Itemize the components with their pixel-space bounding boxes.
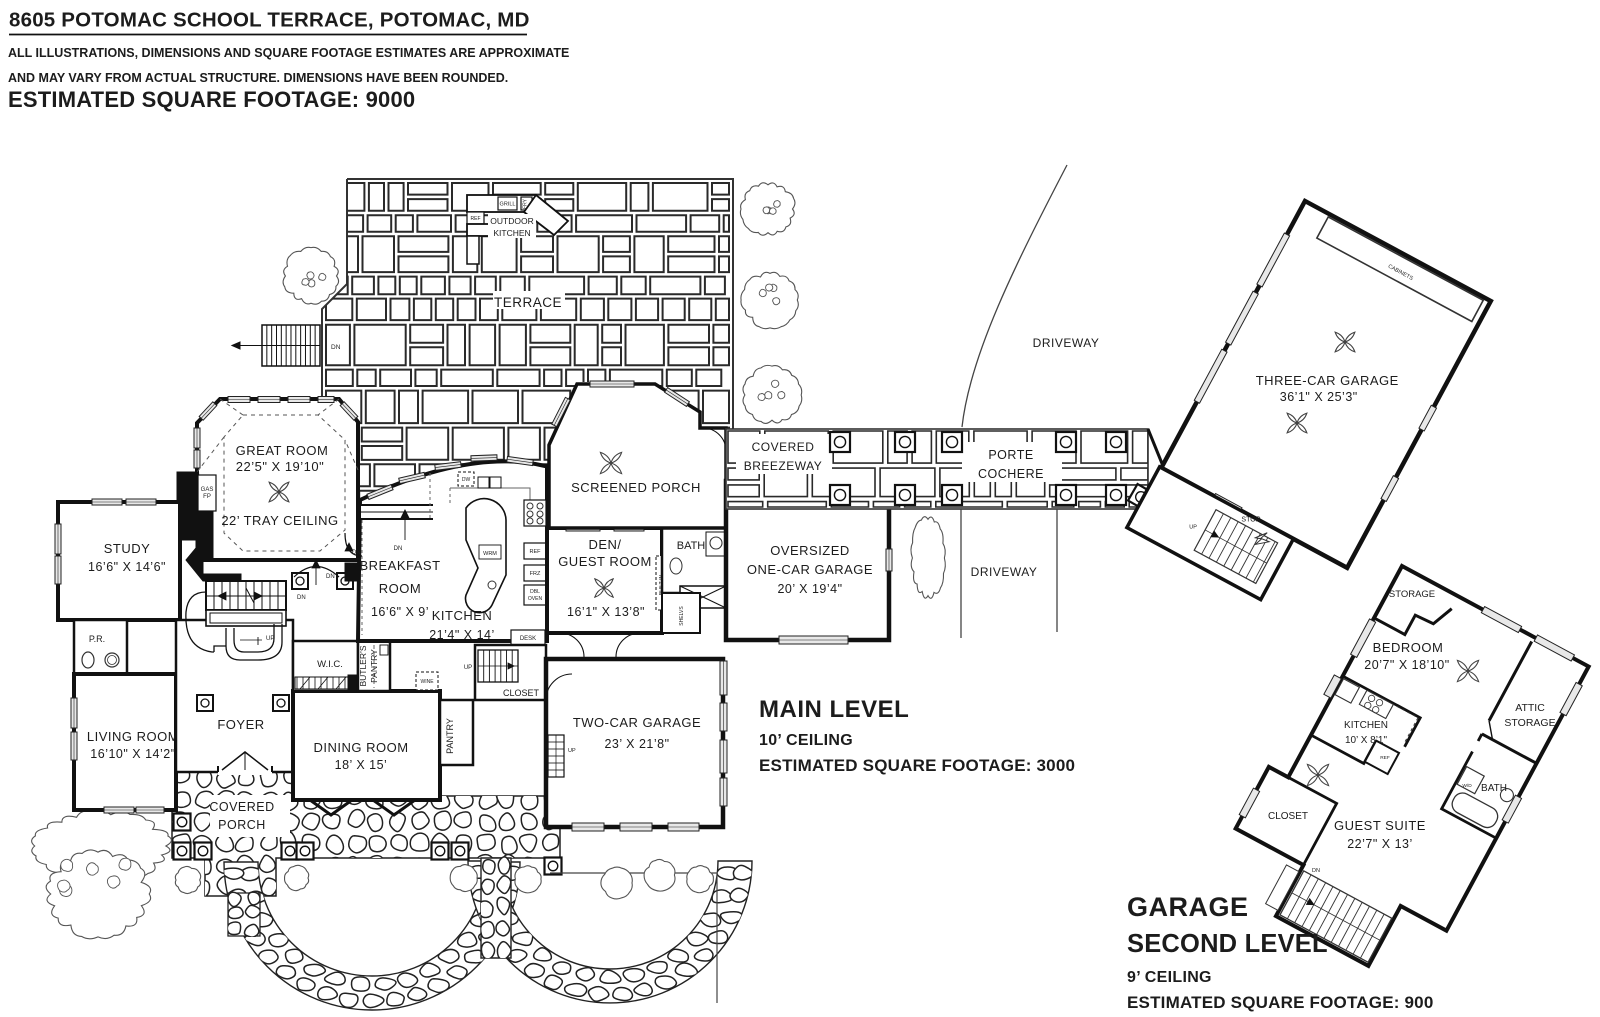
- svg-text:COVERED: COVERED: [209, 800, 274, 814]
- svg-text:8605 POTOMAC SCHOOL TERRACE, P: 8605 POTOMAC SCHOOL TERRACE, POTOMAC, MD: [9, 9, 530, 32]
- svg-text:REF: REF: [1380, 755, 1390, 761]
- svg-text:SCREENED PORCH: SCREENED PORCH: [571, 480, 701, 495]
- svg-text:GUEST ROOM: GUEST ROOM: [558, 554, 652, 569]
- svg-text:DBL: DBL: [530, 589, 540, 595]
- svg-text:16’1" X 13’8": 16’1" X 13’8": [567, 605, 645, 619]
- svg-text:FRZ: FRZ: [530, 571, 541, 577]
- svg-text:COVERED: COVERED: [752, 440, 815, 454]
- svg-text:ESTIMATED SQUARE FOOTAGE: 9000: ESTIMATED SQUARE FOOTAGE: 9000: [8, 87, 415, 112]
- svg-text:DN: DN: [326, 574, 335, 580]
- svg-text:PORTE: PORTE: [988, 448, 1033, 462]
- svg-text:20’7" X 18’10": 20’7" X 18’10": [1364, 658, 1449, 672]
- svg-text:10’ X 8’1": 10’ X 8’1": [1345, 735, 1388, 746]
- svg-text:36’1" X 25’3": 36’1" X 25’3": [1280, 390, 1358, 404]
- svg-text:KITCHEN: KITCHEN: [493, 228, 530, 238]
- svg-text:KITCHEN: KITCHEN: [1344, 720, 1388, 731]
- svg-text:UP: UP: [464, 665, 472, 671]
- svg-text:21’4" X 14’: 21’4" X 14’: [429, 628, 495, 642]
- svg-text:22’5" X 19’10": 22’5" X 19’10": [236, 459, 325, 474]
- svg-text:W.I.C.: W.I.C.: [317, 659, 343, 670]
- svg-text:CLOSET: CLOSET: [503, 688, 540, 698]
- svg-text:OVERSIZED: OVERSIZED: [770, 543, 850, 558]
- svg-text:OUTDOOR: OUTDOOR: [490, 216, 533, 226]
- svg-text:DINING ROOM: DINING ROOM: [313, 740, 408, 755]
- svg-text:18’ X 15’: 18’ X 15’: [335, 758, 388, 772]
- svg-text:TWO-CAR GARAGE: TWO-CAR GARAGE: [573, 715, 701, 730]
- svg-text:FOYER: FOYER: [217, 717, 264, 732]
- svg-text:BATH: BATH: [1481, 783, 1507, 794]
- svg-text:BUTLER’S: BUTLER’S: [358, 645, 368, 686]
- svg-text:STOR: STOR: [1241, 516, 1260, 523]
- svg-text:SHELVS: SHELVS: [679, 606, 685, 626]
- svg-text:BREEZEWAY: BREEZEWAY: [744, 459, 823, 473]
- svg-text:TERRACE: TERRACE: [494, 295, 562, 310]
- svg-text:GAS: GAS: [201, 487, 214, 493]
- svg-text:STUDY: STUDY: [104, 541, 151, 556]
- svg-text:UP: UP: [266, 636, 274, 642]
- svg-text:DRIVEWAY: DRIVEWAY: [1033, 336, 1100, 350]
- svg-text:STORAGE: STORAGE: [1389, 589, 1435, 600]
- svg-text:KITCHEN: KITCHEN: [432, 608, 493, 623]
- svg-text:DESK: DESK: [520, 636, 536, 642]
- svg-text:LIVING ROOM: LIVING ROOM: [87, 729, 179, 744]
- svg-text:BEDROOM: BEDROOM: [1373, 640, 1444, 655]
- svg-text:BREAKFAST: BREAKFAST: [359, 558, 440, 573]
- svg-text:FP: FP: [203, 494, 211, 500]
- svg-text:MAIN LEVEL: MAIN LEVEL: [759, 696, 909, 723]
- svg-text:ONE-CAR GARAGE: ONE-CAR GARAGE: [747, 562, 873, 577]
- svg-text:9’ CEILING: 9’ CEILING: [1127, 969, 1212, 986]
- svg-text:W/D: W/D: [1462, 783, 1472, 789]
- svg-text:ESTIMATED SQUARE FOOTAGE: 900: ESTIMATED SQUARE FOOTAGE: 900: [1127, 993, 1433, 1012]
- svg-text:DN: DN: [331, 344, 341, 351]
- svg-text:WINE: WINE: [420, 679, 434, 685]
- svg-text:CLOSET: CLOSET: [1268, 811, 1308, 822]
- svg-text:22’ TRAY CEILING: 22’ TRAY CEILING: [221, 513, 338, 528]
- svg-text:SECOND LEVEL: SECOND LEVEL: [1127, 930, 1328, 958]
- svg-text:ATTIC: ATTIC: [1515, 702, 1545, 714]
- svg-text:20’ X 19’4": 20’ X 19’4": [777, 582, 842, 596]
- svg-text:16’6" X 14’6": 16’6" X 14’6": [88, 560, 166, 574]
- svg-text:STORAGE: STORAGE: [1504, 717, 1555, 729]
- svg-text:16’10" X 14’2": 16’10" X 14’2": [90, 747, 175, 761]
- svg-text:PORCH: PORCH: [218, 818, 266, 832]
- svg-text:GRILL: GRILL: [500, 202, 516, 208]
- svg-text:DW: DW: [462, 477, 471, 483]
- svg-text:AND MAY VARY FROM ACTUAL STRUC: AND MAY VARY FROM ACTUAL STRUCTURE. DIME…: [8, 71, 508, 85]
- svg-text:THREE-CAR GARAGE: THREE-CAR GARAGE: [1256, 373, 1399, 388]
- svg-text:DN: DN: [352, 550, 361, 556]
- svg-text:ROOM: ROOM: [379, 581, 421, 596]
- svg-text:COCHERE: COCHERE: [978, 467, 1044, 481]
- svg-text:ALL ILLUSTRATIONS, DIMENSIONS: ALL ILLUSTRATIONS, DIMENSIONS AND SQUARE…: [8, 46, 569, 60]
- svg-text:10’ CEILING: 10’ CEILING: [759, 732, 853, 749]
- svg-text:16’6" X 9’: 16’6" X 9’: [371, 605, 429, 619]
- svg-text:REF: REF: [471, 216, 481, 222]
- svg-text:DEN/: DEN/: [588, 537, 621, 552]
- svg-text:22’7" X 13’: 22’7" X 13’: [1347, 837, 1413, 851]
- svg-text:GREAT ROOM: GREAT ROOM: [236, 443, 329, 458]
- svg-text:P.R.: P.R.: [89, 634, 105, 644]
- svg-text:GARAGE: GARAGE: [1127, 892, 1249, 922]
- svg-text:GUEST SUITE: GUEST SUITE: [1334, 818, 1426, 833]
- svg-text:OVEN: OVEN: [528, 596, 543, 602]
- svg-text:UP: UP: [568, 748, 576, 754]
- svg-text:UP: UP: [1189, 524, 1197, 530]
- svg-text:DN: DN: [394, 546, 403, 552]
- svg-text:BATH: BATH: [677, 540, 706, 552]
- svg-text:DRIVEWAY: DRIVEWAY: [971, 565, 1038, 579]
- svg-text:ESTIMATED SQUARE FOOTAGE: 3000: ESTIMATED SQUARE FOOTAGE: 3000: [759, 756, 1075, 775]
- svg-text:PANTRY: PANTRY: [445, 718, 455, 754]
- svg-text:DN: DN: [297, 595, 306, 601]
- svg-text:DN: DN: [1312, 868, 1320, 874]
- svg-text:WRM: WRM: [483, 551, 497, 557]
- svg-text:REF: REF: [530, 549, 542, 555]
- svg-text:23’ X 21’8": 23’ X 21’8": [604, 737, 669, 751]
